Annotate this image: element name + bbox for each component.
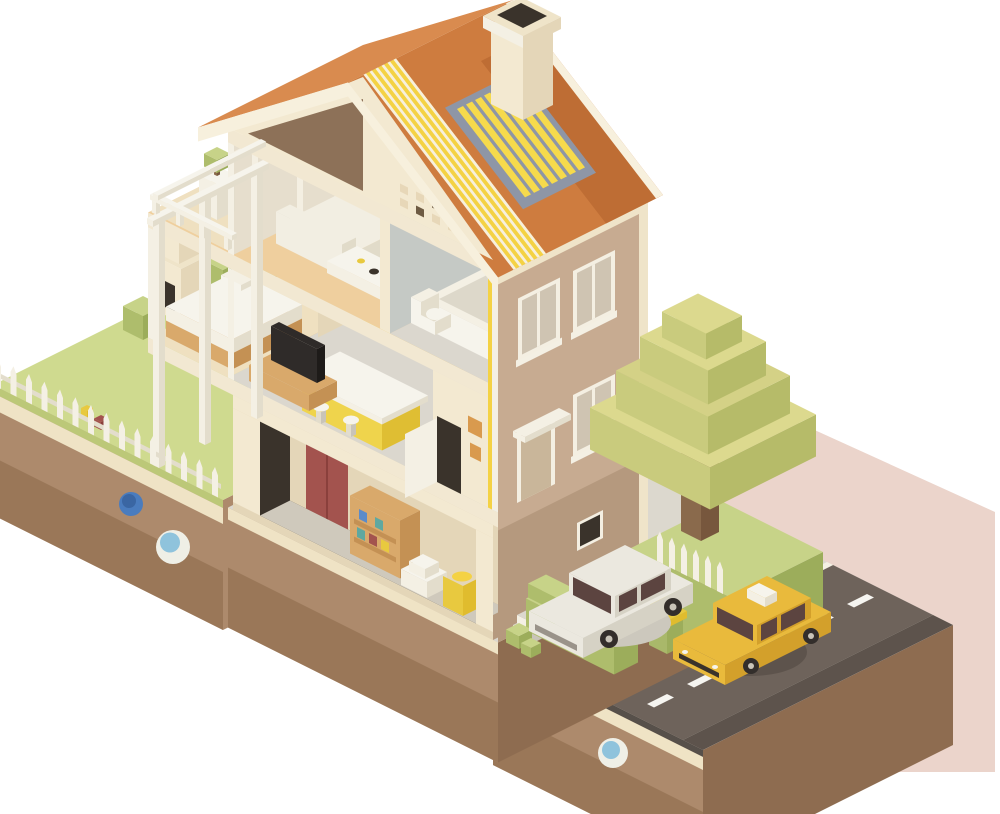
- water-pipe-road-face: [598, 738, 628, 768]
- house-cutaway-illustration: [0, 0, 1000, 814]
- illustration-stage: [0, 0, 1000, 814]
- chimney: [483, 0, 561, 120]
